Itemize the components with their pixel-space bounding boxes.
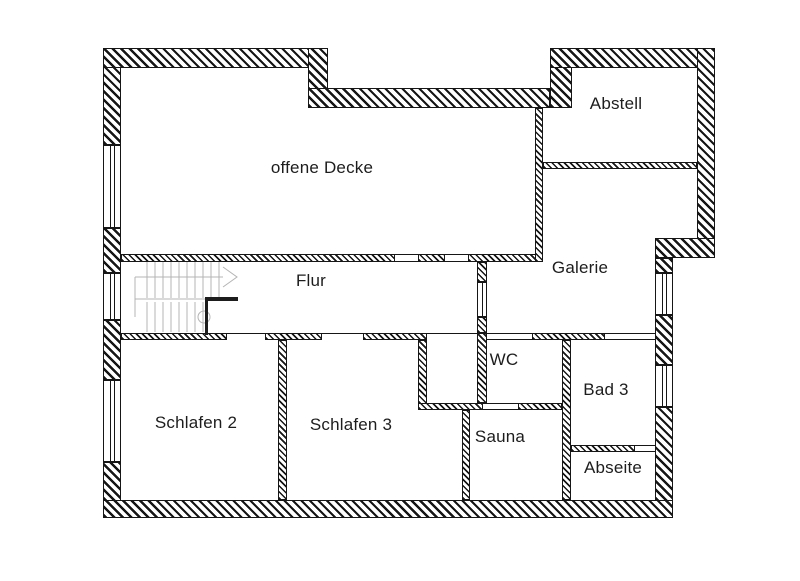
wall-outer-bottom xyxy=(103,500,673,518)
railing-flur-galerie xyxy=(477,282,487,317)
staircase xyxy=(130,260,242,338)
wall-outer-right-step xyxy=(655,238,715,258)
room-label-flur: Flur xyxy=(296,271,326,291)
wall-offene-decke-2 xyxy=(418,254,445,262)
room-label-schlafen-3: Schlafen 3 xyxy=(310,415,392,435)
door-schlafen3 xyxy=(322,333,363,340)
wall-outer-right-2 xyxy=(655,315,673,365)
wall-outer-right-upper xyxy=(697,48,715,258)
wall-schlafen-divider xyxy=(278,340,287,500)
window-left-3 xyxy=(103,380,121,462)
wall-outer-top-b xyxy=(308,88,550,108)
room-label-wc: WC xyxy=(490,350,519,370)
wall-sauna-top-2 xyxy=(518,403,562,410)
wall-rooms-top-3 xyxy=(363,333,427,340)
window-left-2 xyxy=(103,273,121,320)
room-label-offene-decke: offene Decke xyxy=(271,158,373,178)
door-bad3 xyxy=(605,333,655,340)
wall-wc-bad3-divider xyxy=(562,340,571,500)
wall-abstell-bottom xyxy=(543,162,697,169)
room-label-galerie: Galerie xyxy=(552,258,608,278)
opening-niche xyxy=(427,333,477,340)
opening-bad3-abseite xyxy=(635,445,655,452)
wall-flur-galerie-1 xyxy=(477,262,487,282)
door-sauna xyxy=(483,403,518,410)
room-label-schlafen-2: Schlafen 2 xyxy=(155,413,237,433)
wall-bad3-abseite xyxy=(571,445,635,452)
room-label-bad-3: Bad 3 xyxy=(583,380,628,400)
window-left-1 xyxy=(103,145,121,228)
opening-offene-decke-2 xyxy=(445,254,468,262)
wall-rooms-top-4 xyxy=(532,333,605,340)
wall-sauna-top-1 xyxy=(418,403,483,410)
wall-niche-left xyxy=(418,340,427,410)
wall-flur-galerie-2 xyxy=(477,317,487,333)
wall-outer-left-3 xyxy=(103,320,121,380)
door-wc xyxy=(487,333,532,340)
stair-direction-arrow xyxy=(135,267,237,287)
window-right-1 xyxy=(655,273,673,315)
wall-outer-top-c xyxy=(550,48,715,68)
floor-plan: offene Decke Abstell Flur Galerie WC Bad… xyxy=(0,0,800,581)
wall-outer-left-2 xyxy=(103,228,121,273)
wall-abstell-left xyxy=(535,108,543,262)
wall-offene-decke-3 xyxy=(468,254,543,262)
room-label-sauna: Sauna xyxy=(475,427,525,447)
wall-rooms-top-2 xyxy=(265,333,322,340)
room-label-abstell: Abstell xyxy=(590,94,642,114)
opening-offene-decke-1 xyxy=(395,254,418,262)
room-label-abseite: Abseite xyxy=(584,458,642,478)
wall-sauna-left xyxy=(462,410,470,500)
window-right-2 xyxy=(655,365,673,407)
wall-outer-right-1 xyxy=(655,258,673,273)
wall-outer-top-a xyxy=(103,48,328,68)
wall-wc-left xyxy=(477,333,487,403)
